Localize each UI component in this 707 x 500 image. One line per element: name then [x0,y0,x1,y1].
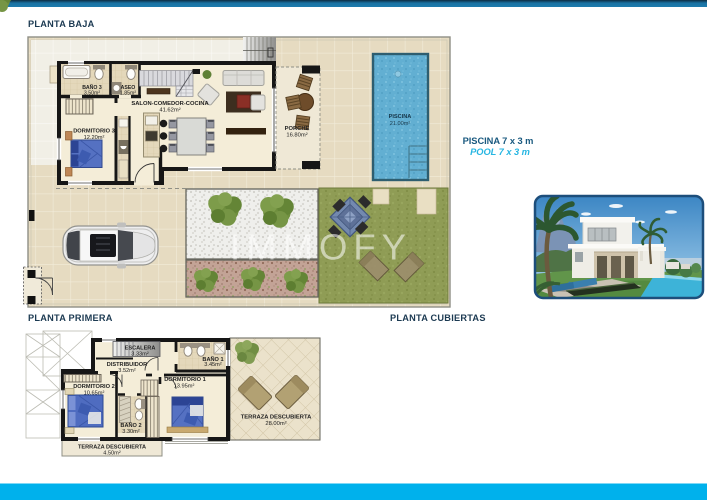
svg-text:3.33m²: 3.33m² [131,352,149,358]
svg-text:PLANTA PRIMERA: PLANTA PRIMERA [28,313,113,323]
svg-text:DORMITORIO 1: DORMITORIO 1 [164,377,206,383]
svg-text:BAÑO 2: BAÑO 2 [120,422,141,429]
svg-text:3.45m²: 3.45m² [204,362,222,368]
svg-text:28.00m²: 28.00m² [265,421,286,427]
svg-text:4.50m²: 4.50m² [103,451,121,457]
svg-text:POOL 7 x 3 m: POOL 7 x 3 m [470,147,530,157]
svg-text:DORMITORIO 3: DORMITORIO 3 [73,129,115,135]
svg-text:1.85m²: 1.85m² [120,91,136,97]
svg-text:21.00m²: 21.00m² [390,121,411,127]
svg-text:PISCINA: PISCINA [389,114,412,120]
svg-text:3.30m²: 3.30m² [122,429,140,435]
svg-text:3.50m²: 3.50m² [84,91,100,97]
svg-text:3.52m²: 3.52m² [118,368,136,374]
svg-text:41.62m²: 41.62m² [159,108,180,114]
svg-text:TERRAZA DESCUBIERTA: TERRAZA DESCUBIERTA [241,415,312,421]
svg-text:12.20m²: 12.20m² [84,135,105,141]
svg-text:PISCINA 7 x 3 m: PISCINA 7 x 3 m [463,136,534,146]
svg-text:SALON-COMEDOR-COCINA: SALON-COMEDOR-COCINA [131,101,209,107]
svg-text:PORCHE: PORCHE [285,126,310,132]
svg-text:IMMOFY: IMMOFY [230,227,412,268]
svg-text:10.65m²: 10.65m² [84,391,105,397]
svg-text:16.80m²: 16.80m² [286,133,307,139]
svg-text:PLANTA BAJA: PLANTA BAJA [28,19,95,29]
svg-text:13.95m²: 13.95m² [174,384,195,390]
svg-text:PLANTA CUBIERTAS: PLANTA CUBIERTAS [390,313,486,323]
svg-text:DORMITORIO 2: DORMITORIO 2 [73,384,115,390]
